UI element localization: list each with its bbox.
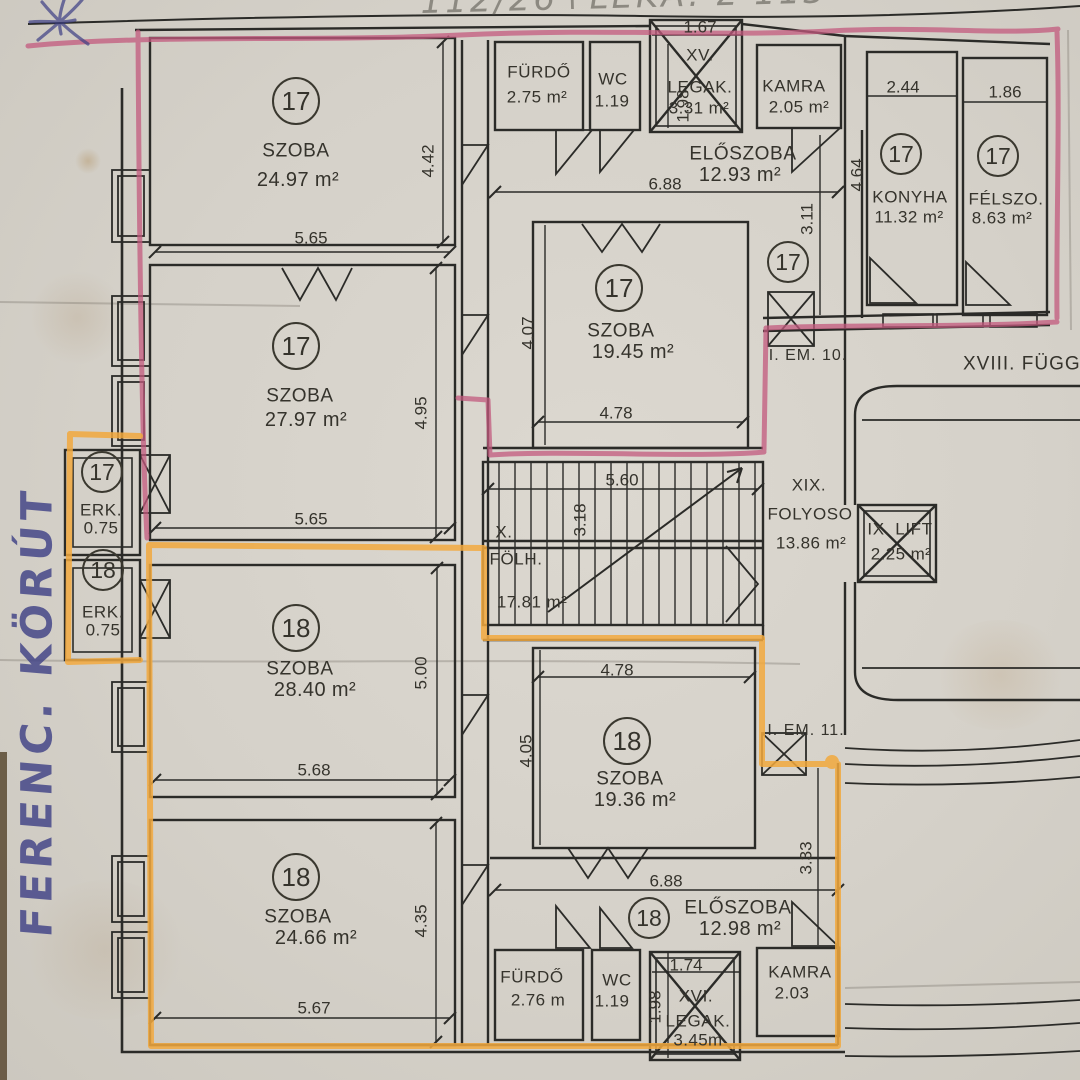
room-name: ERK. — [80, 502, 122, 519]
dimension: 5.00 — [413, 656, 430, 689]
handwriting-street-name: FERENC. KÖRÚT — [17, 485, 60, 939]
dimension: 6.88 — [648, 176, 681, 193]
dimension: 2.44 — [886, 79, 919, 96]
unit-circle-17: 17 — [880, 133, 922, 175]
room-name: FÉLSZO. — [968, 191, 1043, 208]
room-area: 28.40 m² — [274, 680, 356, 700]
room-name: KONYHA — [872, 189, 947, 206]
room-area: 19.36 m² — [594, 790, 676, 810]
dimension: 5.65 — [294, 230, 327, 247]
dimension: 4.64 — [849, 158, 866, 191]
dimension: 5.65 — [294, 511, 327, 528]
room-area: 24.97 m² — [257, 170, 339, 190]
room-name: WC — [598, 71, 628, 88]
room-area: 27.97 m² — [265, 410, 347, 430]
dimension: 1.67 — [683, 19, 716, 36]
unit-circle-18: 18 — [272, 604, 320, 652]
room-area: 0.75 — [86, 622, 121, 639]
room-prefix: XVI. — [679, 988, 714, 1005]
unit-circle-17: 17 — [272, 77, 320, 125]
dimension: 4.07 — [520, 316, 537, 349]
unit-circle-17: 17 — [81, 451, 123, 493]
room-area: 2.75 m² — [507, 89, 567, 106]
unit-circle-17: 17 — [272, 322, 320, 370]
room-name: SZOBA — [262, 142, 329, 161]
room-name: SZOBA — [266, 387, 333, 406]
room-name: FÖLH. — [489, 551, 542, 568]
unit-circle-18: 18 — [82, 549, 124, 591]
dimension: 4.42 — [420, 144, 437, 177]
floor-note-em10: I. EM. 10. — [769, 348, 847, 364]
floorplan-photo: 112/26+LEKA. Σ 113 FERENC. KÖRÚT 17 17 1… — [0, 0, 1080, 1080]
room-area: 2.25 m² — [871, 546, 931, 563]
room-name: KAMRA — [768, 964, 831, 981]
room-name: ELŐSZOBA — [684, 899, 791, 918]
dimension: 5.60 — [605, 472, 638, 489]
room-area: 3.45m — [673, 1032, 722, 1049]
dimension: 1.86 — [988, 84, 1021, 101]
dimension: 4.78 — [600, 662, 633, 679]
room-area: 8.63 m² — [972, 210, 1032, 227]
room-area: 12.93 m² — [699, 165, 781, 185]
unit-circle-17: 17 — [977, 135, 1019, 177]
room-area: 12.98 m² — [699, 919, 781, 939]
dimension: 1.98 — [675, 89, 692, 122]
dimension: 6.88 — [649, 873, 682, 890]
room-area: 2.05 m² — [769, 99, 829, 116]
room-name: SZOBA — [264, 908, 331, 927]
room-name: ERK. — [82, 604, 124, 621]
dimension: 1.74 — [669, 957, 702, 974]
floor-note-em11: I. EM. 11. — [767, 723, 844, 739]
room-name: LEGAK. — [665, 1013, 730, 1030]
room-prefix: XV. — [686, 47, 714, 64]
room-name: ELŐSZOBA — [689, 145, 796, 164]
unit-circle-17: 17 — [595, 264, 643, 312]
room-area: 17.81 m² — [497, 594, 567, 611]
dimension: 4.35 — [413, 904, 430, 937]
room-area: 13.86 m² — [776, 535, 846, 552]
unit-circle-18: 18 — [272, 853, 320, 901]
room-area: 0.75 — [84, 520, 119, 537]
gallery-label: XVIII. FÜGGŐ — [963, 355, 1080, 374]
unit-circle-17: 17 — [767, 241, 809, 283]
room-area: 1.19 — [595, 993, 630, 1010]
dimension: 1.98 — [647, 990, 664, 1023]
room-name: IX. LIFT — [867, 521, 932, 538]
room-name: FÜRDŐ — [500, 969, 563, 986]
dimension: 4.05 — [518, 734, 535, 767]
room-name: SZOBA — [596, 770, 663, 789]
room-area: 2.03 — [775, 985, 810, 1002]
dimension: 5.68 — [297, 762, 330, 779]
room-area: 1.19 — [595, 93, 630, 110]
door-bowties — [140, 292, 814, 775]
courtyard-outline — [845, 386, 1080, 1056]
dimension: 3.11 — [799, 203, 816, 235]
dimension: 4.78 — [599, 405, 632, 422]
room-name: FOLYOSO — [767, 506, 852, 523]
unit-circle-18: 18 — [628, 897, 670, 939]
room-prefix: XIX. — [792, 477, 827, 494]
room-name: SZOBA — [266, 660, 333, 679]
room-area: 11.32 m² — [874, 209, 943, 226]
room-name: SZOBA — [587, 322, 654, 341]
room-area: 19.45 m² — [592, 342, 674, 362]
room-name: FÜRDŐ — [507, 64, 570, 81]
room-name: KAMRA — [762, 78, 825, 95]
dimension: 4.95 — [413, 396, 430, 429]
room-prefix: X. — [495, 524, 512, 541]
room-area: 2.76 m — [511, 992, 565, 1009]
dimension: 5.67 — [297, 1000, 330, 1017]
room-area: 24.66 m² — [275, 928, 357, 948]
unit-circle-18: 18 — [603, 717, 651, 765]
room-name: WC — [602, 972, 632, 989]
dimension: 3.18 — [572, 503, 589, 536]
dimension: 3.33 — [798, 841, 815, 874]
